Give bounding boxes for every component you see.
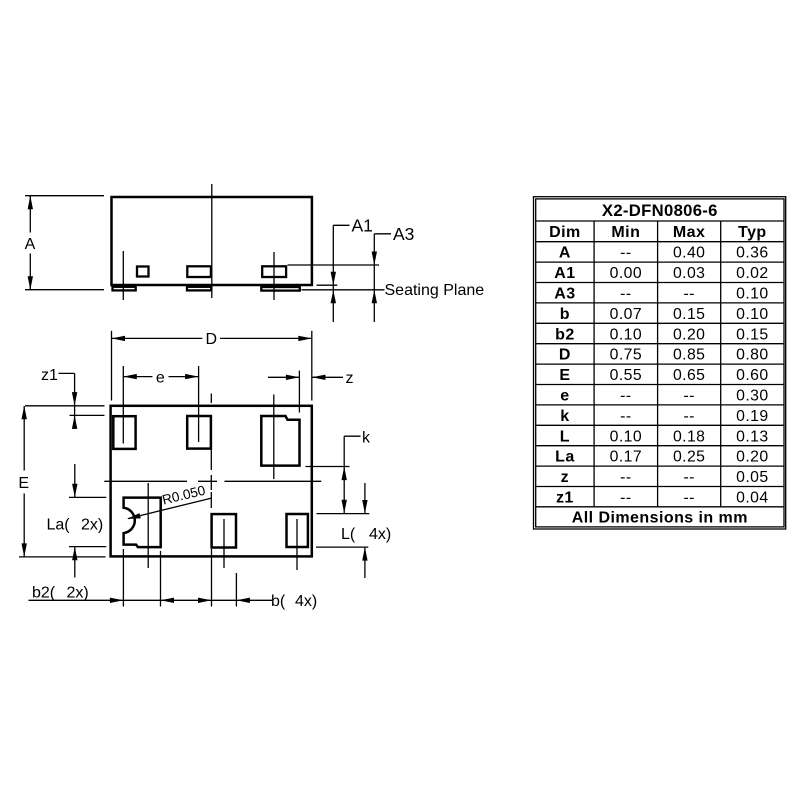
svg-text:z1: z1 (41, 367, 58, 384)
svg-text:0.18: 0.18 (673, 428, 705, 445)
svg-text:0.60: 0.60 (736, 367, 768, 384)
svg-text:0.13: 0.13 (736, 428, 768, 445)
svg-text:D: D (206, 331, 218, 348)
svg-text:Dim: Dim (549, 224, 581, 241)
svg-text:0.36: 0.36 (736, 245, 768, 262)
svg-text:Max: Max (673, 224, 705, 241)
svg-text:0.25: 0.25 (673, 449, 705, 466)
svg-text:--: -- (683, 286, 694, 303)
svg-text:0.55: 0.55 (610, 367, 642, 384)
svg-text:--: -- (683, 408, 694, 425)
svg-text:0.15: 0.15 (736, 326, 768, 343)
svg-text:0.17: 0.17 (610, 449, 642, 466)
svg-text:--: -- (620, 408, 631, 425)
svg-text:0.75: 0.75 (610, 347, 642, 364)
svg-text:z: z (346, 370, 354, 387)
svg-text:--: -- (683, 388, 694, 405)
svg-text:A3: A3 (554, 286, 575, 303)
svg-text:Typ: Typ (738, 224, 767, 241)
svg-text:0.04: 0.04 (736, 490, 768, 507)
svg-text:2x): 2x) (67, 584, 89, 601)
svg-text:4x): 4x) (295, 593, 317, 610)
svg-text:--: -- (620, 388, 631, 405)
svg-text:b: b (560, 306, 570, 323)
svg-text:0.10: 0.10 (610, 326, 642, 343)
svg-text:0.10: 0.10 (610, 428, 642, 445)
svg-text:0.20: 0.20 (736, 449, 768, 466)
svg-text:La: La (555, 449, 575, 466)
svg-text:0.03: 0.03 (673, 265, 705, 282)
svg-text:Seating Plane: Seating Plane (385, 282, 485, 299)
svg-text:--: -- (620, 469, 631, 486)
svg-text:z: z (561, 469, 569, 486)
svg-text:0.10: 0.10 (736, 286, 768, 303)
svg-text:A1: A1 (554, 265, 575, 282)
svg-text:--: -- (620, 286, 631, 303)
svg-text:0.02: 0.02 (736, 265, 768, 282)
svg-text:0.80: 0.80 (736, 347, 768, 364)
svg-text:--: -- (620, 245, 631, 262)
svg-text:0.07: 0.07 (610, 306, 642, 323)
svg-text:z1: z1 (556, 490, 574, 507)
svg-text:k: k (362, 430, 371, 447)
svg-text:All Dimensions in mm: All Dimensions in mm (572, 510, 748, 527)
svg-text:0.30: 0.30 (736, 388, 768, 405)
svg-text:e: e (156, 369, 165, 386)
svg-text:L(: L( (341, 526, 356, 543)
svg-text:E: E (18, 475, 29, 492)
svg-text:0.65: 0.65 (673, 367, 705, 384)
svg-text:Min: Min (611, 224, 640, 241)
svg-text:e: e (560, 388, 569, 405)
svg-text:A1: A1 (352, 216, 373, 236)
svg-text:0.85: 0.85 (673, 347, 705, 364)
svg-text:k: k (560, 408, 569, 425)
svg-text:0.10: 0.10 (736, 306, 768, 323)
svg-text:b(: b( (271, 593, 286, 610)
svg-text:A3: A3 (393, 224, 414, 244)
svg-text:A: A (25, 236, 36, 253)
svg-text:0.05: 0.05 (736, 469, 768, 486)
svg-text:La(: La( (47, 517, 71, 534)
svg-text:--: -- (620, 490, 631, 507)
svg-text:0.19: 0.19 (736, 408, 768, 425)
svg-text:A: A (559, 245, 571, 262)
svg-text:0.20: 0.20 (673, 326, 705, 343)
svg-text:D: D (559, 347, 571, 364)
svg-text:E: E (559, 367, 570, 384)
svg-text:0.40: 0.40 (673, 245, 705, 262)
svg-text:X2-DFN0806-6: X2-DFN0806-6 (602, 201, 718, 220)
svg-text:2x): 2x) (81, 517, 103, 534)
svg-text:--: -- (683, 469, 694, 486)
svg-text:0.15: 0.15 (673, 306, 705, 323)
svg-text:4x): 4x) (369, 526, 391, 543)
svg-text:b2: b2 (555, 326, 575, 343)
svg-text:--: -- (683, 490, 694, 507)
svg-text:L: L (560, 428, 570, 445)
svg-text:b2(: b2( (32, 584, 56, 601)
svg-text:0.00: 0.00 (610, 265, 642, 282)
